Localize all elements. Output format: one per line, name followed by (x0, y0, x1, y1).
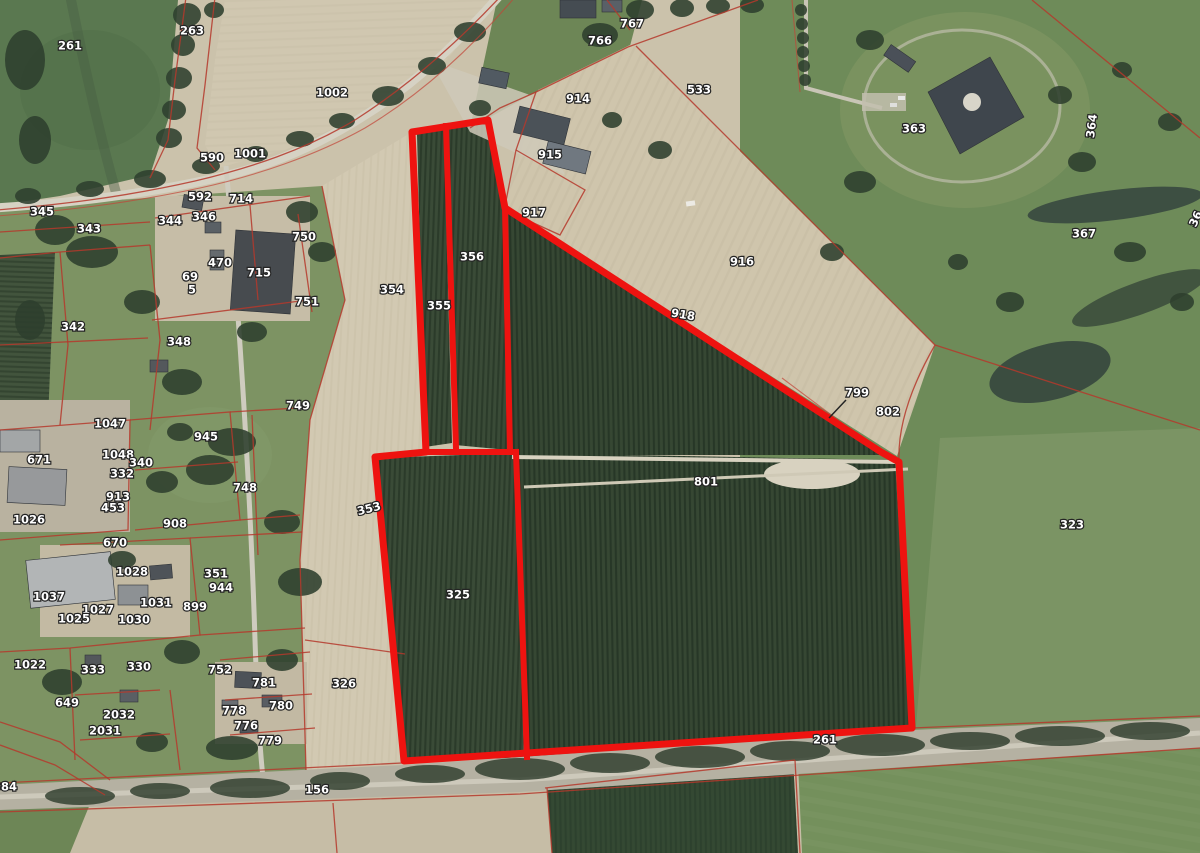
parcel-label-453: 453 (101, 501, 125, 515)
parcel-label-5: 5 (188, 283, 196, 297)
parcel-label-1047: 1047 (94, 417, 126, 431)
parcel-label-330: 330 (127, 660, 151, 674)
parcel-label-916: 916 (730, 255, 754, 269)
parcel-label-345: 345 (30, 205, 54, 219)
parcel-label-670: 670 (103, 536, 127, 550)
parcel-label-343: 343 (77, 222, 101, 236)
parcel-label-1028: 1028 (116, 565, 148, 579)
parcel-label-342: 342 (61, 320, 85, 334)
parcel-label-261: 261 (58, 39, 82, 53)
parcel-label-748: 748 (233, 481, 257, 495)
parcel-label-915: 915 (538, 148, 562, 162)
parcel-label-766: 766 (588, 34, 612, 48)
parcel-label-908: 908 (163, 517, 187, 531)
parcel-label-671: 671 (27, 453, 51, 467)
parcel-label-749: 749 (286, 399, 310, 413)
parcel-label-344: 344 (158, 214, 182, 228)
parcel-label-715: 715 (247, 266, 271, 280)
map-viewport[interactable]: 2612631002767766914915533363364367365901… (0, 0, 1200, 853)
parcel-label-2032: 2032 (103, 708, 135, 722)
parcel-label-801: 801 (694, 475, 718, 489)
parcel-label-1025: 1025 (58, 612, 90, 626)
parcel-label-351: 351 (204, 567, 228, 581)
parcel-label-2031: 2031 (89, 724, 121, 738)
parcel-label-802: 802 (876, 405, 900, 419)
parcel-label-751: 751 (295, 295, 319, 309)
parcel-label-356: 356 (460, 250, 484, 264)
parcel-label-945: 945 (194, 430, 218, 444)
parcel-label-914: 914 (566, 92, 590, 106)
parcel-label-1026: 1026 (13, 513, 45, 527)
parcel-label-1030: 1030 (118, 613, 150, 627)
parcel-label-944: 944 (209, 581, 233, 595)
parcel-label-781: 781 (252, 676, 276, 690)
parcel-label-590: 590 (200, 151, 224, 165)
parcel-label-776: 776 (234, 719, 258, 733)
parcel-label-1037: 1037 (33, 590, 65, 604)
parcel-label-779: 779 (258, 734, 282, 748)
aerial-cadastral-map[interactable]: 2612631002767766914915533363364367365901… (0, 0, 1200, 853)
parcel-label-714: 714 (229, 192, 253, 206)
parcel-label-325: 325 (446, 588, 470, 602)
parcel-label-1001: 1001 (234, 147, 266, 161)
parcel-label-263: 263 (180, 24, 204, 38)
parcel-label-592: 592 (188, 190, 212, 204)
parcel-label-1002: 1002 (316, 86, 348, 100)
parcel-label-323: 323 (1060, 518, 1084, 532)
parcel-label-767: 767 (620, 17, 644, 31)
parcel-label-261: 261 (813, 733, 837, 747)
parcel-label-917: 917 (522, 206, 546, 220)
parcel-label-364: 364 (1083, 113, 1100, 139)
parcel-label-69: 69 (182, 270, 198, 284)
parcel-label-354: 354 (380, 283, 404, 297)
parcel-label-752: 752 (208, 663, 232, 677)
parcel-label-533: 533 (687, 83, 711, 97)
parcel-label-326: 326 (332, 677, 356, 691)
parcel-label-367: 367 (1072, 227, 1096, 241)
parcel-label-778: 778 (222, 704, 246, 718)
parcel-label-1031: 1031 (140, 596, 172, 610)
parcel-label-355: 355 (427, 299, 451, 313)
parcel-label-333: 333 (81, 663, 105, 677)
parcel-label-470: 470 (208, 256, 232, 270)
parcel-label-156: 156 (305, 783, 329, 797)
parcel-label-1022: 1022 (14, 658, 46, 672)
parcel-label-332: 332 (110, 467, 134, 481)
parcel-label-780: 780 (269, 699, 293, 713)
parcel-label-899: 899 (183, 600, 207, 614)
parcel-label-346: 346 (192, 210, 216, 224)
parcel-label-348: 348 (167, 335, 191, 349)
parcel-label-363: 363 (902, 122, 926, 136)
parcel-label-799: 799 (845, 386, 869, 400)
parcel-label-384: 384 (0, 780, 17, 794)
parcel-label-649: 649 (55, 696, 79, 710)
parcel-label-750: 750 (292, 230, 316, 244)
